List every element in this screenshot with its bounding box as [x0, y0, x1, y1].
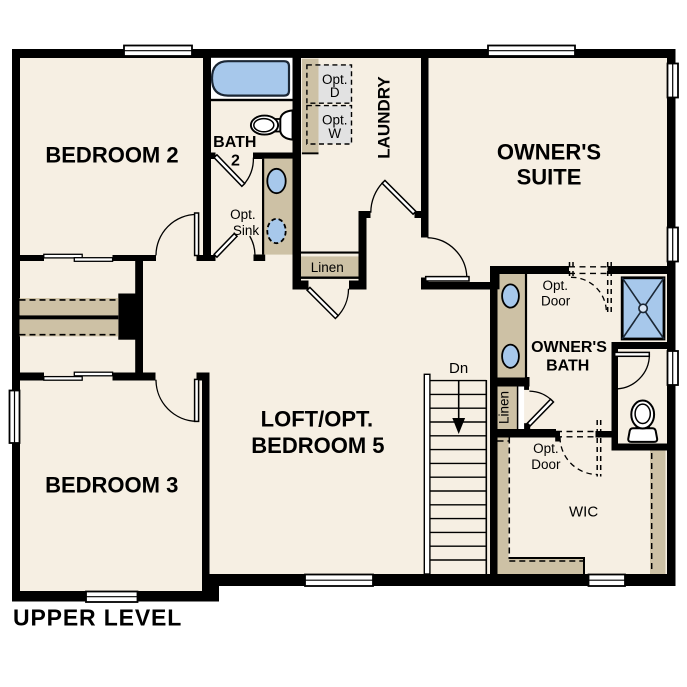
svg-text:OWNER'S: OWNER'S	[497, 139, 601, 164]
svg-text:LAUNDRY: LAUNDRY	[375, 76, 394, 159]
svg-text:Opt.: Opt.	[543, 278, 569, 293]
svg-text:Sink: Sink	[233, 223, 260, 238]
svg-text:UPPER LEVEL: UPPER LEVEL	[13, 605, 182, 631]
svg-text:2: 2	[231, 153, 240, 170]
svg-text:D: D	[330, 85, 340, 100]
svg-text:BEDROOM 2: BEDROOM 2	[45, 142, 178, 167]
svg-text:BATH: BATH	[546, 358, 589, 375]
svg-text:Dn: Dn	[449, 360, 468, 377]
svg-text:Door: Door	[531, 457, 561, 472]
svg-text:BEDROOM 3: BEDROOM 3	[45, 473, 178, 498]
svg-text:BEDROOM 5: BEDROOM 5	[251, 433, 384, 458]
svg-text:W: W	[328, 126, 341, 141]
svg-text:Door: Door	[541, 294, 571, 309]
svg-text:OWNER'S: OWNER'S	[531, 339, 607, 356]
svg-text:BATH: BATH	[213, 134, 256, 151]
svg-text:WIC: WIC	[569, 503, 598, 520]
svg-text:Opt.: Opt.	[533, 441, 559, 456]
svg-text:SUITE: SUITE	[517, 165, 582, 190]
svg-text:Linen: Linen	[497, 391, 512, 424]
svg-text:Opt.: Opt.	[230, 207, 256, 222]
svg-text:LOFT/OPT.: LOFT/OPT.	[261, 407, 373, 432]
svg-text:Linen: Linen	[311, 260, 344, 275]
